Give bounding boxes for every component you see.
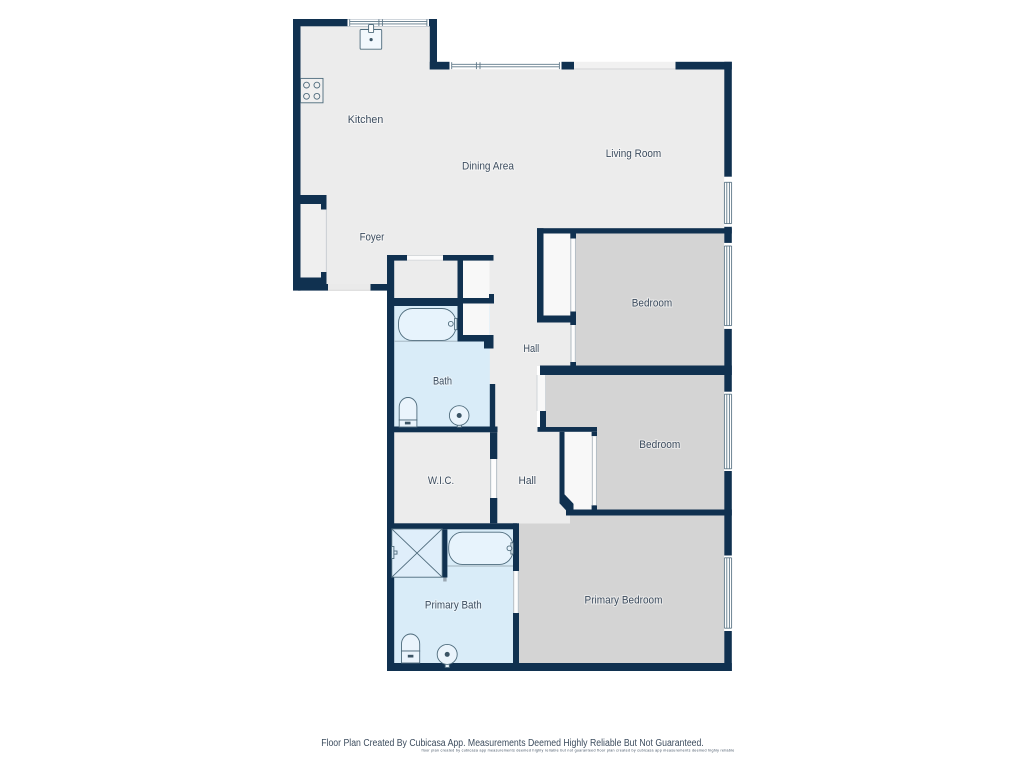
svg-text:Dining Area: Dining Area xyxy=(462,161,514,173)
svg-text:floor plan created by cubicasa: floor plan created by cubicasa app measu… xyxy=(421,749,734,753)
svg-text:Primary Bath: Primary Bath xyxy=(425,599,482,611)
svg-text:Hall: Hall xyxy=(519,475,537,487)
svg-text:Bedroom: Bedroom xyxy=(632,297,673,309)
svg-text:Hall: Hall xyxy=(523,343,539,355)
svg-text:Floor Plan Created By Cubicasa: Floor Plan Created By Cubicasa App. Meas… xyxy=(321,738,704,749)
svg-text:Primary Bedroom: Primary Bedroom xyxy=(585,594,663,606)
svg-text:Foyer: Foyer xyxy=(360,231,385,243)
svg-text:Living Room: Living Room xyxy=(606,148,662,160)
svg-text:Bath: Bath xyxy=(433,375,452,387)
svg-text:Kitchen: Kitchen xyxy=(348,114,384,126)
svg-text:W.I.C.: W.I.C. xyxy=(428,475,454,487)
svg-text:Bedroom: Bedroom xyxy=(639,439,680,451)
